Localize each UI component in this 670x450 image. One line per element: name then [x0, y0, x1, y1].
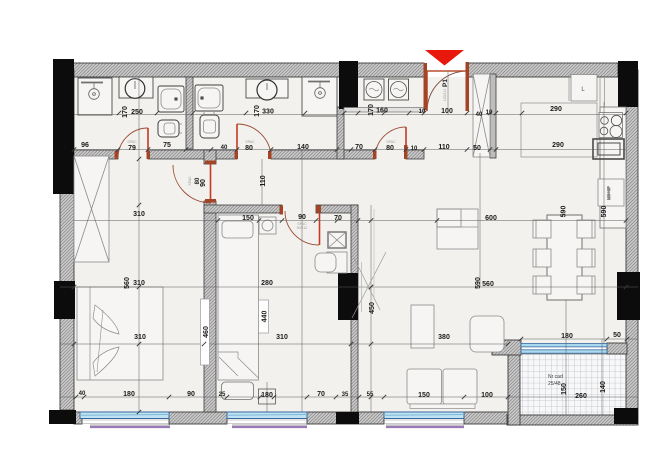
svg-text:70: 70 [355, 144, 363, 151]
svg-text:90/212: 90/212 [297, 226, 308, 230]
svg-text:170: 170 [122, 106, 129, 118]
svg-text:150: 150 [242, 215, 254, 222]
svg-text:MS+SP: MS+SP [606, 186, 611, 200]
svg-text:90: 90 [200, 179, 207, 187]
svg-text:Nr cad: Nr cad [548, 374, 563, 380]
svg-text:440: 440 [262, 311, 269, 323]
svg-text:SPAC: SPAC [188, 176, 192, 186]
svg-text:600: 600 [485, 215, 497, 222]
svg-text:310: 310 [133, 280, 145, 287]
svg-text:380: 380 [438, 334, 450, 341]
svg-text:310: 310 [133, 211, 145, 218]
svg-text:290: 290 [552, 142, 564, 149]
svg-text:100: 100 [441, 108, 453, 115]
svg-text:110: 110 [260, 175, 267, 186]
svg-text:140: 140 [297, 144, 309, 151]
svg-text:70: 70 [334, 215, 342, 222]
svg-text:10: 10 [411, 146, 418, 152]
svg-text:180: 180 [261, 392, 273, 399]
svg-text:140: 140 [600, 381, 607, 393]
svg-text:50: 50 [613, 332, 621, 339]
svg-text:100/212: 100/212 [443, 89, 447, 102]
svg-text:310: 310 [134, 334, 146, 341]
svg-text:SPAC: SPAC [245, 140, 255, 144]
svg-text:90: 90 [187, 391, 195, 398]
svg-text:560: 560 [482, 281, 494, 288]
svg-text:180: 180 [123, 391, 135, 398]
svg-text:P1: P1 [442, 79, 449, 87]
svg-text:40: 40 [221, 145, 228, 151]
svg-text:SPAC: SPAC [386, 140, 396, 144]
svg-text:25: 25 [219, 392, 226, 398]
svg-text:35: 35 [342, 392, 349, 398]
svg-text:280: 280 [261, 280, 273, 287]
svg-text:75: 75 [163, 142, 171, 149]
svg-text:70: 70 [317, 391, 325, 398]
svg-text:40: 40 [476, 112, 483, 118]
svg-text:260: 260 [575, 393, 587, 400]
svg-text:50: 50 [473, 145, 481, 152]
svg-text:590: 590 [561, 206, 568, 218]
svg-text:110: 110 [438, 144, 449, 151]
svg-text:560: 560 [124, 277, 131, 289]
svg-text:100: 100 [481, 392, 493, 399]
svg-text:150: 150 [418, 392, 430, 399]
svg-text:170: 170 [254, 105, 261, 117]
svg-text:79: 79 [128, 145, 136, 152]
svg-text:450: 450 [369, 302, 376, 314]
svg-text:590: 590 [475, 277, 482, 289]
svg-text:90: 90 [298, 214, 306, 221]
svg-text:25/48: 25/48 [548, 381, 561, 387]
svg-text:310: 310 [276, 334, 288, 341]
svg-text:330: 330 [262, 109, 274, 116]
svg-text:80: 80 [195, 177, 201, 184]
svg-text:80: 80 [245, 145, 253, 152]
svg-text:80: 80 [386, 145, 394, 152]
svg-text:180: 180 [561, 333, 573, 340]
svg-text:250: 250 [131, 109, 143, 116]
svg-text:150: 150 [561, 383, 568, 395]
svg-text:96: 96 [81, 142, 89, 149]
svg-text:170: 170 [368, 104, 375, 116]
svg-text:460: 460 [203, 326, 210, 338]
svg-text:SPAC: SPAC [127, 140, 137, 144]
svg-text:290: 290 [550, 106, 562, 113]
svg-text:590: 590 [601, 206, 608, 218]
